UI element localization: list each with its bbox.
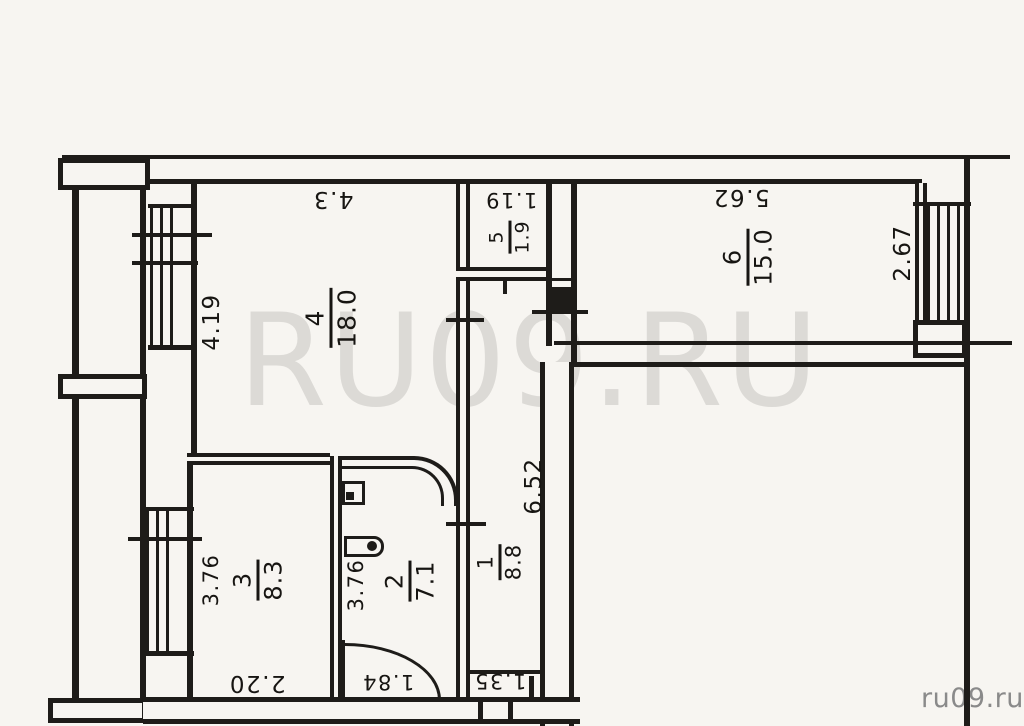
- door-threshold: [508, 699, 513, 723]
- room-number: 5: [488, 230, 507, 243]
- room-3-label: 3 8.3: [231, 559, 286, 600]
- room-area: 7.1: [414, 560, 438, 601]
- window-cap: [148, 345, 196, 350]
- wall-segment: [187, 455, 193, 707]
- door-threshold: [478, 699, 483, 723]
- door-threshold: [529, 676, 534, 698]
- dim-hall-length: 6.52: [521, 457, 547, 514]
- room-4-label: 4 18.0: [303, 288, 360, 348]
- fixture-symbol: [367, 541, 377, 551]
- dimension-tick: [446, 318, 484, 322]
- room-6-label: 6 15.0: [721, 228, 776, 285]
- room-2-label: 2 7.1: [383, 560, 438, 601]
- wall-segment: [540, 362, 574, 726]
- room-area: 15.0: [752, 228, 776, 285]
- room-number: 1: [476, 555, 497, 569]
- window-symbol: [146, 509, 174, 655]
- room-area: 1.9: [514, 220, 533, 253]
- dimension-tick: [503, 281, 507, 294]
- dim-room3-width: 2.20: [228, 670, 285, 696]
- room-area: 18.0: [335, 288, 360, 348]
- window-symbol: [150, 206, 180, 348]
- dimension-tick: [552, 278, 574, 281]
- room-number: 4: [303, 310, 328, 327]
- dim-hall-width: 1.35: [474, 669, 527, 693]
- dimension-tick: [446, 522, 486, 526]
- site-credit: ru09.ru: [921, 683, 1024, 714]
- wall-segment: [571, 362, 968, 367]
- room-1-label: 1 8.8: [476, 544, 525, 580]
- wall-segment: [456, 267, 552, 281]
- wall-segment: [964, 157, 970, 726]
- dim-room2-depth: 3.76: [344, 559, 368, 612]
- fixture-symbol: [344, 536, 384, 557]
- wall-segment: [456, 184, 470, 704]
- wall-segment: [62, 155, 1010, 159]
- wall-segment: [554, 341, 1012, 345]
- wall-block: [58, 374, 147, 399]
- dim-room3-depth: 3.76: [199, 554, 223, 607]
- dimension-tick: [532, 310, 588, 314]
- window-symbol: [927, 206, 967, 322]
- room-5-label: 5 1.9: [488, 220, 533, 253]
- wall-segment: [191, 184, 197, 460]
- dim-room5-width: 1.19: [485, 188, 538, 212]
- floor-plan-scan: RU09.RU ru09.ru: [0, 0, 1024, 726]
- dim-room2-width: 1.84: [362, 670, 415, 694]
- wall-block: [913, 320, 967, 358]
- room-area: 8.3: [262, 559, 286, 600]
- wall-segment: [150, 179, 922, 184]
- room-number: 6: [721, 249, 745, 265]
- dim-room4-depth: 4.19: [199, 293, 225, 350]
- wall-block: [48, 698, 147, 723]
- wall-segment: [187, 453, 330, 465]
- dimension-tick: [132, 261, 198, 265]
- room-area: 8.8: [504, 544, 525, 580]
- dim-room4-width: 4.3: [312, 186, 353, 212]
- wall-segment: [143, 697, 580, 724]
- wall-segment: [546, 184, 552, 346]
- dimension-tick: [132, 233, 212, 237]
- wall-segment: [571, 184, 577, 364]
- wall-segment: [72, 186, 79, 700]
- room-number: 3: [231, 572, 255, 588]
- room-number: 2: [383, 573, 407, 589]
- vent-shaft-symbol: [346, 492, 354, 500]
- dim-room6-width: 5.62: [712, 184, 769, 210]
- dim-room6-depth: 2.67: [890, 224, 916, 281]
